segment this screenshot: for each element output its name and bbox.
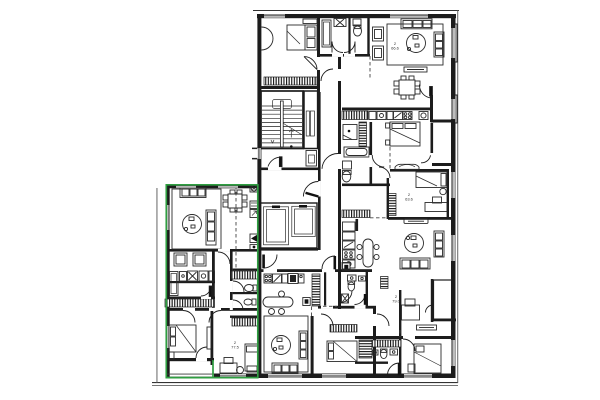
svg-text:79.0: 79.0 xyxy=(392,299,401,304)
svg-text:66.6: 66.6 xyxy=(391,46,400,51)
svg-text:77.5: 77.5 xyxy=(231,345,240,350)
svg-text:63.6: 63.6 xyxy=(405,197,414,202)
